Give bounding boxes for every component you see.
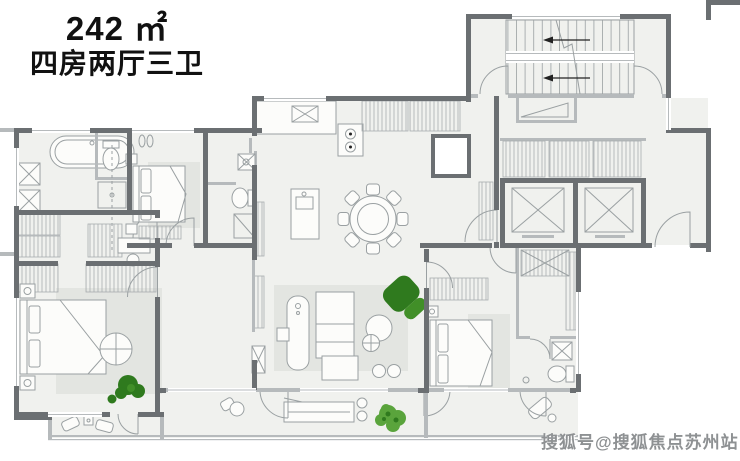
tv-cabinet: [254, 276, 264, 328]
planter: [357, 411, 367, 421]
pouf: [373, 365, 386, 378]
bedroom-third: [426, 262, 492, 386]
pillow: [141, 169, 151, 193]
pillow: [29, 340, 40, 367]
nightstand: [20, 376, 35, 390]
dresser: [139, 226, 181, 239]
watermark: 搜狐号@搜狐焦点苏州站: [541, 428, 739, 453]
layout-label: 四房两厅三卫: [22, 48, 212, 80]
coffee-table: [322, 356, 358, 380]
wardrobe: [86, 264, 156, 292]
pillow: [438, 355, 448, 383]
balcony-chair-seat: [230, 402, 244, 416]
pantry-cabinet: [410, 101, 460, 131]
wall-fixture: [84, 416, 93, 425]
elevator-lobby: [500, 138, 646, 177]
nightstand: [20, 284, 35, 298]
sofa: [316, 292, 354, 358]
shaft-cabinet: [549, 141, 589, 177]
wardrobe: [430, 278, 488, 300]
wardrobe: [18, 214, 60, 235]
shaft-cabinet: [593, 141, 641, 177]
wardrobe: [18, 236, 60, 257]
nightstand: [126, 224, 137, 234]
side-table: [277, 328, 289, 341]
pillow: [438, 324, 448, 352]
toilet: [103, 141, 119, 148]
shaft-cabinet: [503, 141, 545, 177]
storage-niche: [433, 136, 469, 176]
plan-title: 242 ㎡ 四房两厅三卫: [22, 10, 212, 80]
pillow: [141, 196, 151, 220]
floorplan-image: 242 ㎡ 四房两厅三卫 搜狐号@搜狐焦点苏州站: [0, 0, 740, 461]
toilet: [566, 366, 574, 382]
area-label: 242 ㎡: [22, 10, 212, 48]
pillow: [29, 306, 40, 333]
dining-area: [338, 184, 408, 254]
pouf: [388, 365, 401, 378]
dining-table: [350, 196, 396, 242]
tall-cabinet: [566, 252, 576, 330]
pantry-cabinet: [362, 101, 408, 131]
planter: [357, 398, 367, 408]
wardrobe: [88, 224, 122, 257]
chaise-lounge: [287, 296, 309, 370]
